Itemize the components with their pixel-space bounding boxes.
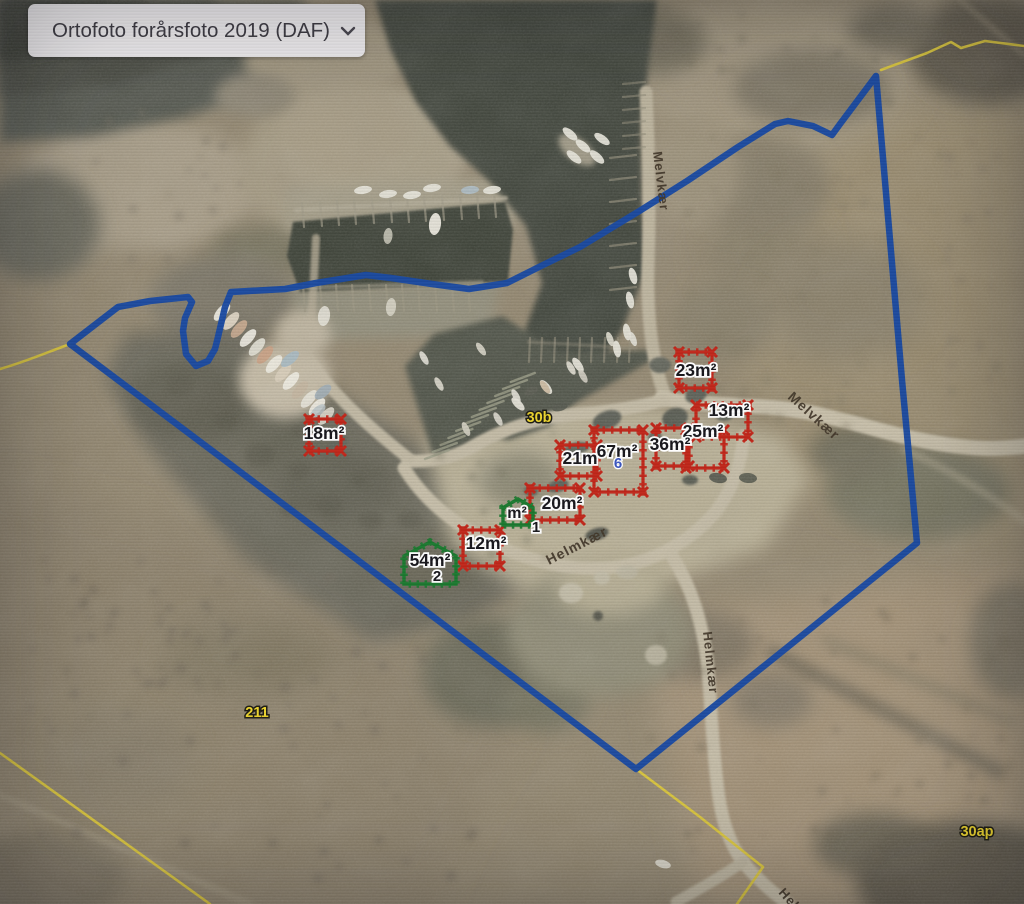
svg-text:30b: 30b: [527, 410, 552, 426]
svg-text:1: 1: [532, 519, 540, 536]
svg-text:30ap: 30ap: [960, 824, 993, 840]
svg-text:23m²: 23m²: [676, 360, 717, 380]
svg-text:6: 6: [614, 455, 622, 472]
svg-text:2: 2: [433, 568, 441, 585]
svg-text:54m²: 54m²: [410, 550, 451, 570]
svg-text:18m²: 18m²: [304, 423, 345, 443]
svg-text:36m²: 36m²: [650, 434, 691, 454]
svg-text:21m: 21m: [562, 448, 597, 468]
svg-text:m²: m²: [507, 505, 527, 522]
svg-text:12m²: 12m²: [466, 533, 507, 553]
svg-text:20m²: 20m²: [542, 493, 583, 513]
svg-text:211: 211: [245, 705, 268, 721]
svg-text:13m²: 13m²: [709, 400, 750, 420]
